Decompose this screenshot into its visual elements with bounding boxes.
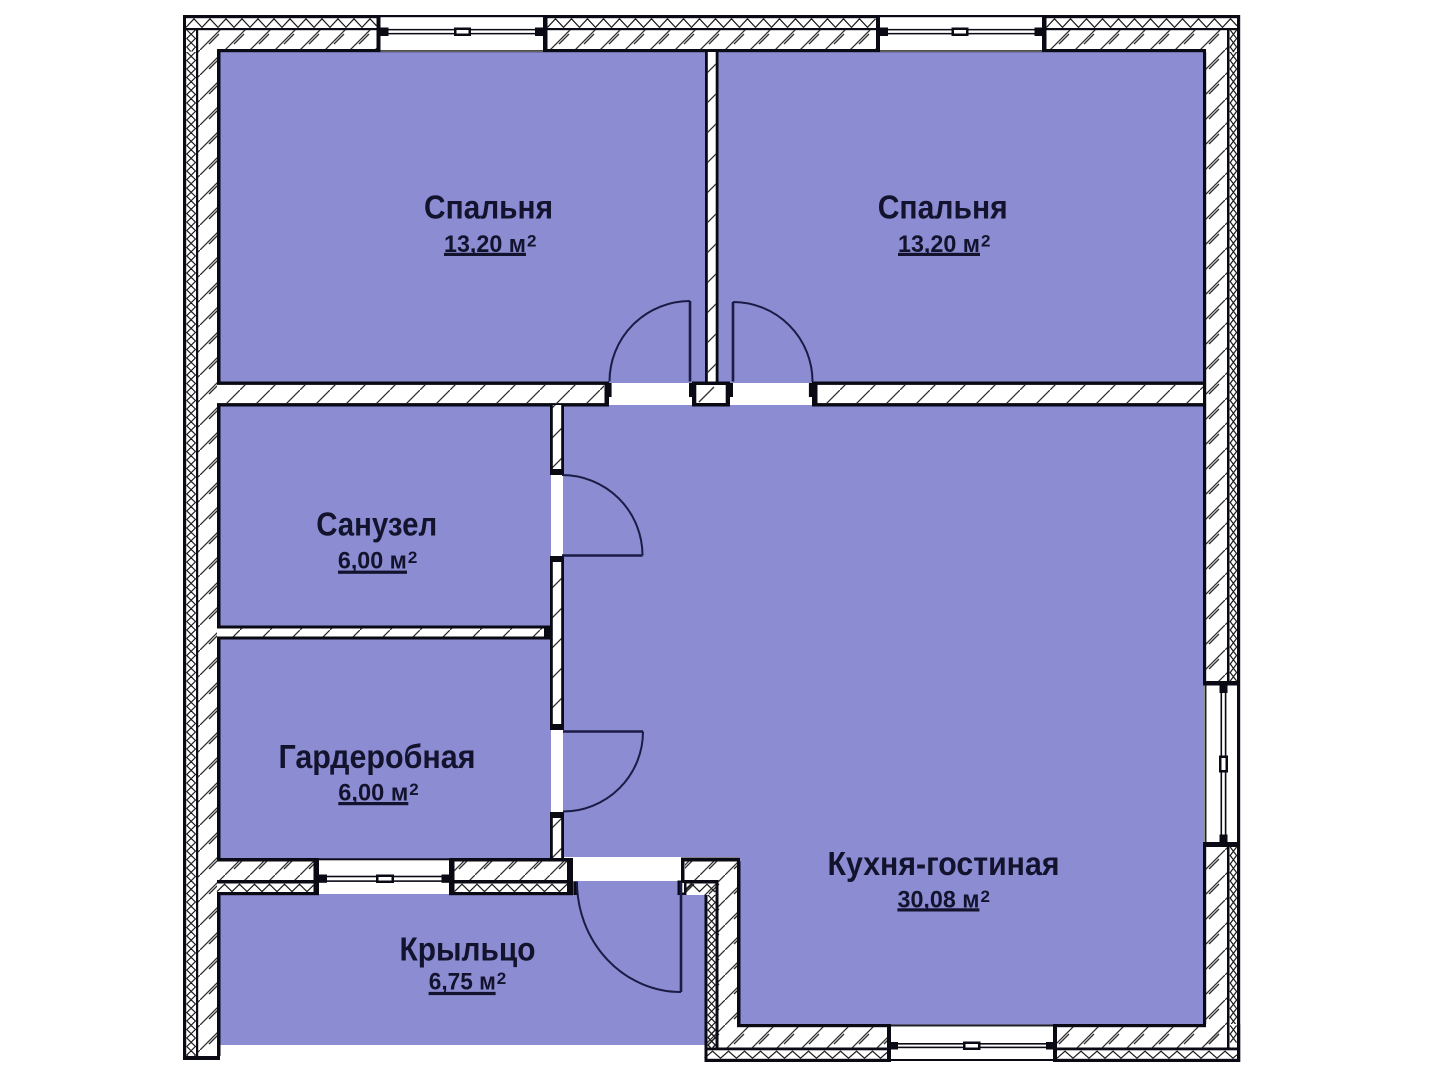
svg-text:Санузел: Санузел — [316, 506, 437, 543]
svg-text:2: 2 — [981, 232, 990, 251]
svg-text:2: 2 — [408, 548, 417, 567]
svg-text:Спальня: Спальня — [424, 189, 553, 226]
svg-text:2: 2 — [527, 232, 536, 251]
svg-text:2: 2 — [497, 969, 506, 988]
svg-text:Гардеробная: Гардеробная — [279, 738, 476, 775]
svg-text:6,00 м: 6,00 м — [338, 548, 407, 575]
svg-text:2: 2 — [409, 780, 418, 799]
svg-text:Спальня: Спальня — [878, 189, 1008, 226]
svg-text:6,75 м: 6,75 м — [429, 969, 496, 996]
svg-text:2: 2 — [981, 887, 990, 906]
svg-text:Кухня-гостиная: Кухня-гостиная — [828, 845, 1060, 882]
svg-text:Крыльцо: Крыльцо — [400, 931, 536, 968]
